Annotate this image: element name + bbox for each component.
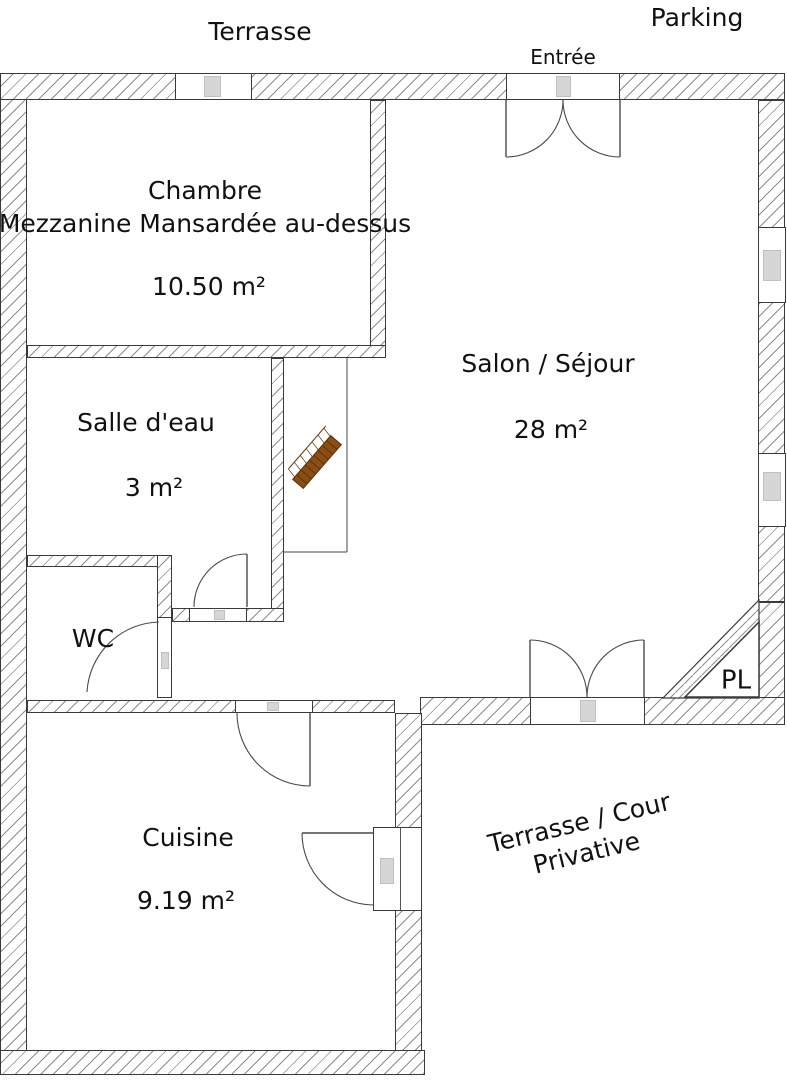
room-area-salon: 28 m² <box>514 415 588 445</box>
label-terrace-top: Terrasse <box>208 17 311 47</box>
stairs-icon <box>285 426 344 489</box>
label-parking: Parking <box>651 3 744 33</box>
label-entrance: Entrée <box>530 45 596 69</box>
entrance-door-swing-right <box>563 100 620 157</box>
room-label-cuisine: Cuisine <box>142 823 233 853</box>
cuisine-door-swing <box>302 833 373 905</box>
floor-plan: Terrasse Parking Entrée Chambre Mezzanin… <box>0 0 787 1080</box>
terrace-door-swing-left <box>530 640 587 697</box>
room-label-salon: Salon / Séjour <box>461 349 634 379</box>
terrace-door-swing-right <box>587 640 644 697</box>
room-area-chambre: 10.50 m² <box>152 272 266 302</box>
room-note-chambre: Mezzanine Mansardée au-dessus <box>0 209 411 239</box>
room-label-chambre: Chambre <box>148 176 262 206</box>
room-area-salledeau: 3 m² <box>125 473 183 503</box>
entrance-door-swing-left <box>506 100 563 157</box>
room-label-salledeau: Salle d'eau <box>77 408 215 438</box>
room-label-placard: PL <box>721 665 751 696</box>
plan-symbols <box>0 0 787 1080</box>
room-label-wc: WC <box>72 624 114 654</box>
room-area-cuisine: 9.19 m² <box>137 886 235 916</box>
salledeau-door-swing <box>194 554 247 607</box>
hall-cuisine-door-swing <box>237 713 310 786</box>
